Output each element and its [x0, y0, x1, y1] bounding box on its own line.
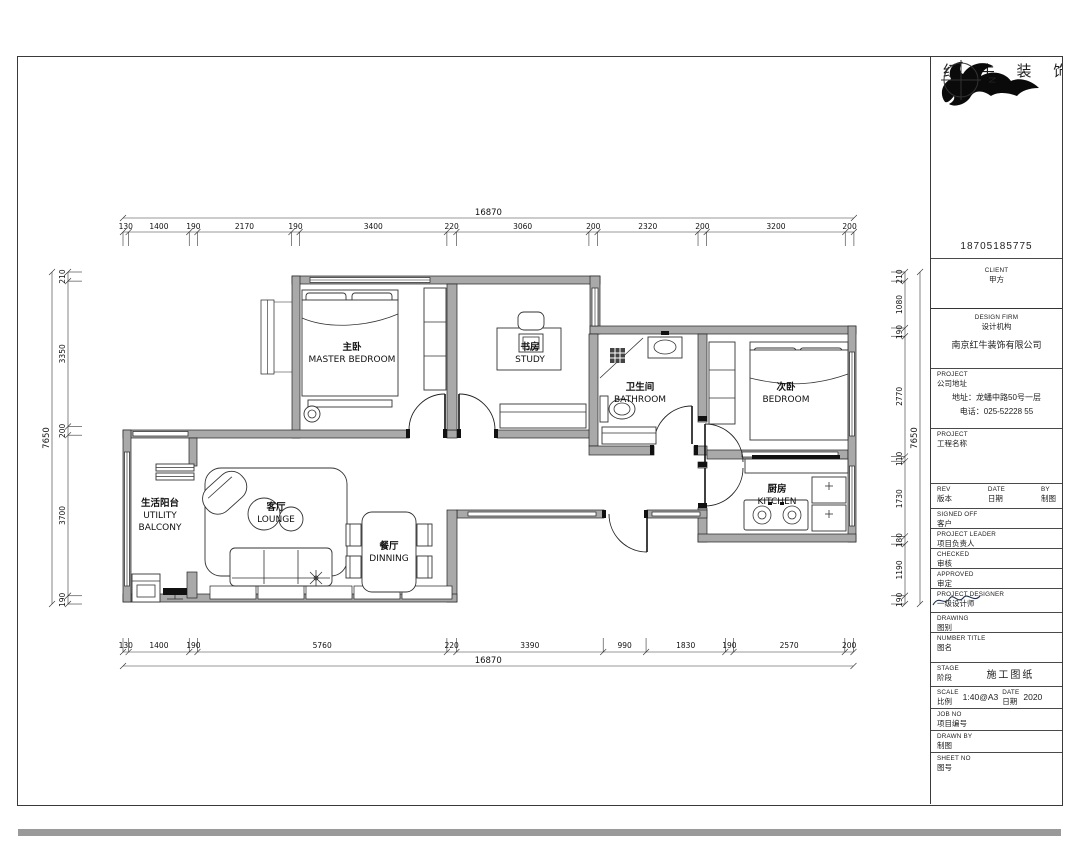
svg-text:190: 190 [895, 593, 904, 608]
svg-text:200: 200 [586, 222, 601, 231]
room-label-dining-cn: 餐厅 [378, 540, 399, 552]
svg-text:1730: 1730 [895, 489, 904, 508]
svg-text:190: 190 [58, 593, 67, 608]
sheet-no-row: SHEET NO图号 [931, 752, 1062, 798]
room-label-kitchen-cn: 厨房 [767, 483, 786, 495]
svg-text:210: 210 [895, 269, 904, 284]
master-wardrobe [424, 288, 446, 390]
svg-text:2170: 2170 [235, 222, 254, 231]
svg-text:2770: 2770 [895, 387, 904, 406]
floor-drain [610, 348, 625, 363]
scale-row: SCALE比例 1:40@A3 DATE日期 2020 [931, 686, 1062, 708]
room-label-kitchen-en: KITCHEN [758, 497, 797, 507]
svg-text:180: 180 [895, 533, 904, 548]
address-label-cn: 公司地址 [937, 379, 1056, 389]
stage-value: 施工图纸 [965, 666, 1056, 684]
firm-name: 南京红牛装饰有限公司 [937, 338, 1056, 351]
svg-text:1080: 1080 [895, 295, 904, 314]
room-label-lounge-en: LOUNGE [257, 515, 295, 525]
room-label-master-cn: 主卧 [342, 341, 362, 353]
stool [304, 406, 320, 422]
drawing-row: DRAWING图别 [931, 612, 1062, 632]
svg-text:3400: 3400 [364, 222, 383, 231]
design-firm-section: DESIGN FIRM 设计机构 南京红牛装饰有限公司 [931, 308, 1062, 368]
room-label-master-en: MASTER BEDROOM [309, 355, 396, 365]
study-chair [518, 312, 544, 330]
svg-text:3200: 3200 [766, 222, 785, 231]
client-section: CLIENT 甲方 [931, 258, 1062, 308]
client-label-en: CLIENT [937, 267, 1056, 275]
checked-row: CHECKED审核 [931, 548, 1062, 568]
hallway-cabinet [602, 427, 656, 444]
svg-text:1830: 1830 [676, 641, 695, 650]
svg-text:200: 200 [842, 641, 857, 650]
room-label-bedroom-cn: 次卧 [776, 381, 796, 393]
shower-area [600, 338, 643, 378]
svg-text:990: 990 [617, 641, 632, 650]
room-label-balcony-en2: BALCONY [139, 523, 182, 533]
drawn-by-row: DRAWN BY制图 [931, 730, 1062, 752]
svg-text:190: 190 [186, 222, 201, 231]
svg-text:130: 130 [119, 641, 134, 650]
project-label-cn: 工程名称 [937, 439, 1056, 449]
project-leader-row: PROJECT LEADER项目负责人 [931, 528, 1062, 548]
svg-text:16870: 16870 [475, 656, 502, 666]
firm-label-cn: 设计机构 [937, 322, 1056, 332]
address-line1: 地址：龙蟠中路50号一层 [937, 392, 1056, 403]
floorplan-sheet: 主卧 MASTER BEDROOM 书房 STUDY 卫生间 BATHROOM … [0, 0, 1080, 864]
bedroom-bed [750, 342, 848, 440]
room-label-dining-en: DINNING [369, 554, 408, 564]
svg-text:3390: 3390 [520, 641, 539, 650]
designer-signature [931, 592, 983, 610]
svg-text:210: 210 [58, 269, 67, 284]
room-label-balcony-cn: 生活阳台 [141, 497, 180, 509]
north-indicator: N [931, 160, 1062, 212]
number-title-row: NUMBER TITLE图名 [931, 632, 1062, 662]
sofa [230, 548, 332, 586]
balcony-shelves [156, 464, 194, 480]
svg-text:190: 190 [895, 325, 904, 340]
svg-text:1400: 1400 [149, 222, 168, 231]
svg-text:2570: 2570 [780, 641, 799, 650]
stage-row: STAGE阶段 施工图纸 [931, 662, 1062, 686]
client-label-cn: 甲方 [937, 275, 1056, 285]
svg-text:16870: 16870 [475, 208, 502, 218]
address-line2: 电话：025-52228 55 [937, 406, 1056, 417]
svg-text:7650: 7650 [42, 427, 52, 449]
kitchen-cabinets [812, 477, 846, 531]
svg-text:1190: 1190 [895, 560, 904, 579]
svg-text:220: 220 [444, 641, 459, 650]
room-label-lounge-cn: 客厅 [265, 501, 286, 513]
svg-text:3700: 3700 [58, 506, 67, 525]
kitchen-counter [745, 455, 848, 473]
job-no-row: JOB NO项目编号 [931, 708, 1062, 730]
bathroom-sink [648, 331, 682, 358]
svg-text:3350: 3350 [58, 344, 67, 363]
room-label-bathroom-cn: 卫生间 [626, 381, 655, 393]
svg-text:220: 220 [444, 222, 459, 231]
svg-text:110: 110 [895, 451, 904, 466]
date-value: 2020 [1023, 692, 1042, 702]
designer-row: PROJECT DESIGNER一级设计师 [931, 588, 1062, 612]
room-label-study-cn: 书房 [520, 341, 539, 353]
signed-off-row: SIGNED OFF客户 [931, 508, 1062, 528]
svg-text:3060: 3060 [513, 222, 532, 231]
scale-value: 1:40@A3 [963, 692, 999, 702]
svg-text:7650: 7650 [910, 427, 920, 449]
svg-text:1400: 1400 [149, 641, 168, 650]
firm-label-en: DESIGN FIRM [937, 314, 1056, 322]
svg-text:190: 190 [186, 641, 201, 650]
room-label-bedroom-en: BEDROOM [763, 395, 810, 405]
bedroom-wardrobe [709, 342, 735, 424]
dining-table [362, 512, 416, 592]
revision-row: REV版本 DATE日期 BY制图 [931, 483, 1062, 508]
svg-text:200: 200 [842, 222, 857, 231]
project-name-section: PROJECT 工程名称 [931, 428, 1062, 483]
study-cabinet [500, 404, 586, 428]
floor-plan-canvas: 主卧 MASTER BEDROOM 书房 STUDY 卫生间 BATHROOM … [0, 0, 1080, 864]
room-label-study-en: STUDY [515, 355, 545, 365]
company-address-section: PROJECT 公司地址 地址：龙蟠中路50号一层 电话：025-52228 5… [931, 368, 1062, 428]
address-label-en: PROJECT [937, 371, 1056, 379]
svg-text:200: 200 [58, 423, 67, 438]
svg-text:130: 130 [119, 222, 134, 231]
phone-number: 18705185775 [960, 241, 1032, 252]
approved-row: APPROVED审定 [931, 568, 1062, 588]
svg-text:200: 200 [695, 222, 710, 231]
svg-text:5760: 5760 [313, 641, 332, 650]
svg-text:2320: 2320 [638, 222, 657, 231]
svg-text:190: 190 [288, 222, 303, 231]
project-label-en: PROJECT [937, 431, 1056, 439]
washing-machine [132, 574, 160, 602]
room-label-bathroom-en: BATHROOM [614, 395, 666, 405]
title-block: 红 牛 装 饰 N 18705185775 CLIENT 甲方 DESIGN F… [930, 56, 1062, 804]
svg-text:190: 190 [722, 641, 737, 650]
room-label-balcony-en1: UTILITY [143, 511, 177, 521]
